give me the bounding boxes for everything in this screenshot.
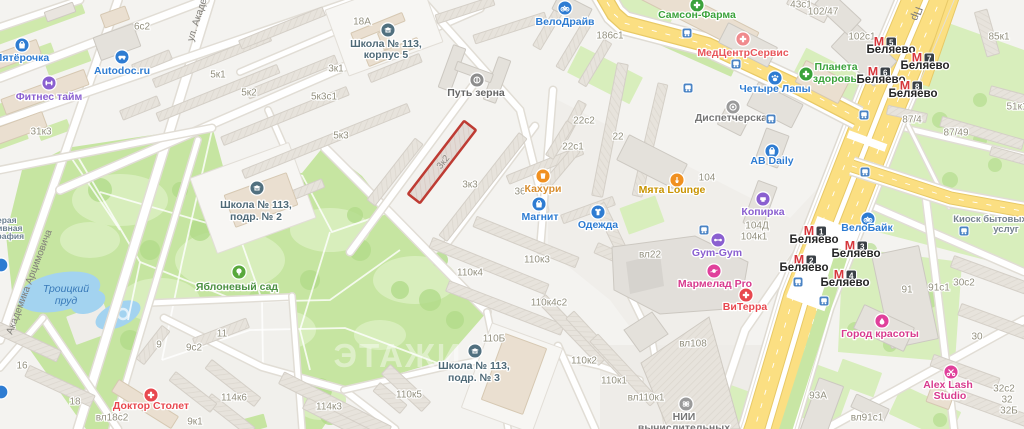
svg-text:110к4: 110к4: [457, 268, 483, 279]
svg-text:110к4с2: 110к4с2: [531, 298, 568, 309]
svg-text:Мармелад Pro: Мармелад Pro: [678, 278, 752, 290]
svg-text:3к1: 3к1: [328, 64, 344, 75]
svg-text:85к1: 85к1: [988, 32, 1009, 43]
svg-text:5к1: 5к1: [210, 70, 226, 81]
svg-text:87/49: 87/49: [943, 128, 968, 139]
svg-text:16: 16: [16, 361, 28, 372]
svg-text:Троицкий: Троицкий: [43, 283, 89, 295]
svg-text:Копирка: Копирка: [741, 206, 784, 218]
svg-text:102с1: 102с1: [848, 32, 876, 43]
svg-text:Диспетчерская: Диспетчерская: [695, 112, 773, 124]
svg-text:ВелоДрайв: ВелоДрайв: [535, 16, 595, 28]
svg-text:пруд: пруд: [55, 295, 78, 307]
svg-text:Мята Lounge: Мята Lounge: [639, 184, 706, 196]
svg-text:Беляево: Беляево: [820, 277, 869, 289]
svg-text:91: 91: [901, 285, 913, 296]
svg-text:18А: 18А: [353, 17, 371, 28]
svg-text:110Б: 110Б: [483, 334, 506, 345]
svg-text:Самсон-Фарма: Самсон-Фарма: [658, 9, 736, 21]
svg-text:вл110к1: вл110к1: [628, 393, 665, 404]
svg-text:102/47: 102/47: [808, 7, 839, 18]
svg-text:Доктор Столет: Доктор Столет: [113, 400, 189, 412]
svg-text:5к2: 5к2: [241, 88, 257, 99]
svg-text:подр. № 2: подр. № 2: [230, 211, 282, 223]
svg-text:22с2: 22с2: [573, 116, 595, 127]
svg-text:Город красоты: Город красоты: [841, 328, 919, 340]
svg-text:Беляево: Беляево: [888, 88, 937, 100]
svg-text:вл91с1: вл91с1: [851, 413, 884, 424]
svg-text:Беляево: Беляево: [866, 44, 915, 56]
svg-text:Беляево: Беляево: [856, 74, 905, 86]
svg-text:22: 22: [612, 132, 624, 143]
svg-text:110к5: 110к5: [396, 390, 422, 401]
svg-text:9: 9: [156, 340, 162, 351]
svg-text:Магнит: Магнит: [521, 211, 558, 223]
svg-text:Четыре Лапы: Четыре Лапы: [739, 83, 810, 95]
svg-text:186с1: 186с1: [596, 31, 624, 42]
svg-text:87/4: 87/4: [902, 115, 922, 126]
svg-text:Школа № 113,: Школа № 113,: [438, 360, 510, 372]
svg-text:11: 11: [217, 329, 228, 340]
svg-text:5к3с1: 5к3с1: [311, 92, 337, 103]
svg-text:91с1: 91с1: [928, 283, 950, 294]
svg-text:ВелоБайк: ВелоБайк: [841, 222, 893, 234]
svg-text:114к6: 114к6: [221, 393, 247, 404]
svg-text:Беляево: Беляево: [831, 248, 880, 260]
svg-text:18: 18: [69, 397, 81, 408]
svg-text:Школа № 113,: Школа № 113,: [220, 199, 292, 211]
svg-text:32: 32: [1001, 395, 1013, 406]
svg-text:Кахури: Кахури: [525, 183, 562, 195]
svg-text:Пятёрочка: Пятёрочка: [0, 52, 49, 64]
svg-text:Путь зерна: Путь зерна: [447, 87, 505, 99]
svg-text:вл22: вл22: [639, 250, 661, 261]
svg-text:104Д: 104Д: [745, 221, 769, 232]
svg-text:графия: графия: [0, 231, 24, 241]
svg-text:9с2: 9с2: [186, 343, 203, 354]
svg-text:ВиТерра: ВиТерра: [723, 301, 768, 313]
svg-text:Одежда: Одежда: [578, 219, 618, 231]
svg-text:93А: 93А: [809, 391, 827, 402]
svg-text:114к3: 114к3: [316, 402, 342, 413]
svg-text:110к2: 110к2: [571, 356, 597, 367]
svg-text:31к3: 31к3: [30, 127, 51, 138]
svg-text:22с1: 22с1: [562, 142, 584, 153]
svg-text:104к1: 104к1: [741, 232, 768, 243]
svg-text:услуг: услуг: [993, 224, 1019, 235]
svg-text:30с2: 30с2: [953, 278, 975, 289]
svg-text:3к3: 3к3: [462, 180, 478, 191]
svg-text:32с2: 32с2: [993, 384, 1015, 395]
svg-text:110к3: 110к3: [524, 255, 550, 266]
svg-text:Фитнес тайм: Фитнес тайм: [16, 91, 83, 103]
svg-text:Studio: Studio: [934, 390, 967, 402]
svg-text:вычислительных: вычислительных: [638, 422, 730, 429]
svg-text:подр. № 3: подр. № 3: [448, 372, 500, 384]
svg-text:вл108: вл108: [679, 339, 707, 350]
svg-text:6с2: 6с2: [134, 22, 151, 33]
svg-text:корпус 5: корпус 5: [364, 49, 409, 61]
svg-text:5к3: 5к3: [333, 131, 349, 142]
svg-text:32Б: 32Б: [1000, 406, 1018, 417]
svg-text:Autodoc.ru: Autodoc.ru: [94, 65, 150, 77]
svg-text:Беляево: Беляево: [789, 234, 838, 246]
svg-text:Яблоневый сад: Яблоневый сад: [196, 281, 278, 293]
svg-text:110к1: 110к1: [601, 376, 627, 387]
svg-text:30: 30: [971, 332, 983, 343]
svg-text:вл18с2: вл18с2: [96, 413, 129, 424]
svg-text:AB Daily: AB Daily: [750, 155, 793, 167]
svg-text:Беляево: Беляево: [779, 262, 828, 274]
svg-text:МедЦентрСервис: МедЦентрСервис: [697, 47, 789, 59]
svg-text:104: 104: [699, 173, 716, 184]
svg-text:Gym-Gym: Gym-Gym: [692, 247, 742, 259]
svg-text:Беляево: Беляево: [900, 60, 949, 72]
svg-text:51к1: 51к1: [1006, 102, 1024, 113]
svg-text:9к1: 9к1: [187, 417, 203, 428]
svg-text:Планета: Планета: [814, 61, 857, 73]
